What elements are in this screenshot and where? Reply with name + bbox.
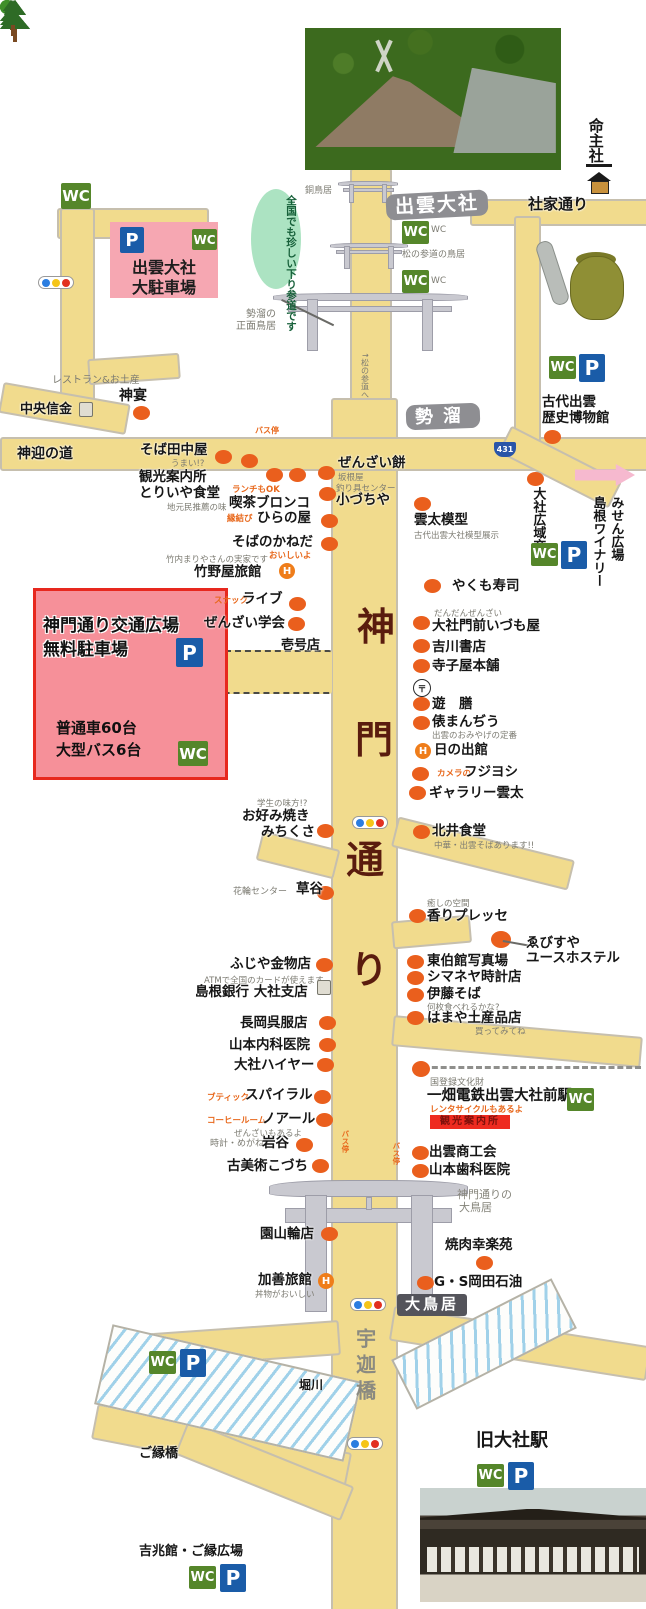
- torii-gate-part: [366, 1197, 372, 1210]
- map-label: 山本内科医院: [229, 1038, 310, 1054]
- shrine-roof: [453, 68, 555, 153]
- parking-icon: P: [579, 354, 605, 382]
- map-label: 島根銀行 大社支店: [195, 985, 308, 1001]
- shrine-icon: [586, 164, 612, 196]
- pine-tree-icon: [0, 126, 22, 156]
- label-kicchokan: 吉兆館・ご縁広場: [139, 1544, 243, 1559]
- bank-building-icon: [317, 980, 331, 995]
- torii-gate: [334, 243, 404, 269]
- shop-dot: [407, 955, 424, 969]
- torii-gate: [283, 293, 457, 351]
- shop-dot: [413, 825, 430, 839]
- map-label: 山本歯科医院: [429, 1163, 510, 1179]
- label-ichibata-station: 一畑電鉄出雲大社前駅: [427, 1088, 572, 1105]
- wc-icon: WC: [149, 1351, 176, 1374]
- shop-dot: [412, 767, 429, 781]
- map-label: 古代出雲: [542, 395, 596, 411]
- shop-dot: [413, 639, 430, 653]
- izumo-taisha-street-map: P WC 出雲大社 大駐車場 神門通り交通広場 無料駐車場 P 普通車60台 大…: [0, 0, 646, 1609]
- map-label: 岩谷: [262, 1136, 289, 1152]
- route-431-shield: 431: [494, 442, 516, 457]
- map-label: 伊藤そば: [427, 987, 481, 1003]
- parking-icon: P: [508, 1462, 534, 1490]
- route-number: 431: [497, 445, 514, 454]
- izumo-taisha-parking-box: P WC 出雲大社 大駐車場: [110, 222, 218, 298]
- map-label: 時計・めがね: [210, 1139, 264, 1150]
- map-label: 俵まんぢう: [432, 715, 500, 731]
- label-seidamari: 勢溜: [406, 403, 481, 431]
- shop-dot: [215, 450, 232, 464]
- label-ukabashi: 宇迦橋: [352, 1328, 376, 1406]
- map-label: 遊 膳: [432, 697, 473, 713]
- shinmon-dori-plaza-parking-box: 神門通り交通広場 無料駐車場 P 普通車60台 大型バス6台 WC: [33, 588, 228, 780]
- shrine-roof: [587, 172, 611, 181]
- pine-tree-icon-part: [11, 25, 15, 36]
- map-label: 銅鳥居: [305, 186, 332, 197]
- station-roof: [420, 1509, 646, 1520]
- pine-tree-icon-part: [0, 10, 26, 25]
- shop-dot: [409, 909, 426, 923]
- map-label: スパイラル: [245, 1088, 313, 1104]
- map-label: 園山輪店: [260, 1227, 314, 1243]
- map-label: とりいや食堂: [139, 486, 220, 502]
- map-label: 地元民推薦の味: [167, 503, 227, 513]
- parking-lot-name: 大駐車場: [110, 274, 218, 298]
- map-label: 長岡呉服店: [240, 1016, 308, 1032]
- map-label: 花輪センター: [233, 887, 287, 898]
- shop-dot: [412, 1061, 430, 1077]
- shop-dot: [413, 716, 430, 730]
- info-center-badge: 観光案内所: [430, 1115, 510, 1129]
- shop-dot: [321, 537, 338, 551]
- shop-dot: [321, 1227, 338, 1241]
- map-label: ギャラリー雲太: [429, 786, 524, 802]
- map-label: G・S岡田石油: [434, 1275, 522, 1291]
- map-label: 日の出館: [434, 743, 488, 759]
- map-label: バス停: [391, 1142, 400, 1165]
- map-label: 買ってみてね: [475, 1027, 526, 1037]
- station-windows: [427, 1547, 639, 1572]
- map-label: 壱号店: [281, 638, 320, 653]
- map-label: 中央信金: [20, 402, 72, 417]
- parking-lot-title: 神門通り交通広場: [43, 611, 179, 636]
- map-label: お好み焼き: [242, 809, 310, 825]
- shop-dot: [317, 824, 334, 838]
- map-label: 小づちや: [336, 493, 390, 509]
- traffic-light-icon: [347, 1437, 383, 1450]
- shop-dot: [407, 988, 424, 1002]
- map-label: 松の参道の鳥居: [402, 250, 465, 261]
- shop-dot: [407, 1011, 424, 1025]
- label-shake-dori: 社家通り: [528, 196, 588, 214]
- pine-tree-icon: [0, 246, 22, 276]
- torii-gate-part: [273, 293, 468, 301]
- map-label: 東伯館写真場: [427, 954, 508, 970]
- shop-dot: [288, 617, 305, 631]
- parking-icon: P: [180, 1349, 206, 1377]
- map-label: そば田中屋: [140, 443, 208, 459]
- torii-gate-part: [330, 243, 408, 248]
- map-label: 大社門前いづも屋: [432, 619, 540, 635]
- parking-icon: P: [561, 541, 587, 569]
- map-label: 古美術こづち: [227, 1159, 308, 1175]
- shop-dot: [314, 1090, 331, 1104]
- street-name-char: 門: [355, 718, 393, 763]
- shop-dot: [407, 971, 424, 985]
- map-label: 香りプレッセ: [427, 909, 508, 925]
- shop-dot: [296, 1138, 313, 1152]
- map-label: 中華・出雲そばあります!!: [434, 841, 534, 851]
- map-label: やくも寿司: [452, 579, 520, 595]
- torii-gate-part: [422, 299, 433, 351]
- shop-dot: [413, 659, 430, 673]
- signal-lamp: [351, 1440, 359, 1448]
- map-label: 寺子屋本舗: [432, 659, 500, 675]
- map-label: 正面鳥居: [236, 321, 276, 333]
- label-inochinushi-sha: 命主社: [586, 118, 604, 163]
- pine-tree-icon: [0, 216, 22, 246]
- map-label: 雲太模型: [414, 513, 468, 529]
- map-label: ふじや金物店: [230, 957, 311, 973]
- daikoku-bag-illustration: [542, 234, 624, 326]
- torii-gate-part: [349, 184, 354, 203]
- map-label: はまや土産品店: [427, 1011, 522, 1027]
- torii-gate-part: [338, 181, 398, 186]
- wc-icon: WC: [477, 1464, 504, 1487]
- parking-icon: P: [220, 1564, 246, 1592]
- parking-icon: P: [120, 227, 144, 253]
- shop-dot: [133, 406, 150, 420]
- pine-tree-icon: [0, 276, 31, 318]
- map-label: フジヨシ: [464, 765, 518, 781]
- shop-dot: [413, 697, 430, 711]
- map-label: 草谷: [296, 882, 323, 898]
- map-label: 吉川書店: [432, 640, 486, 656]
- map-label: ひらの屋: [257, 511, 311, 527]
- shop-dot: [417, 1276, 434, 1290]
- label-kyu-taisha-station: 旧大社駅: [476, 1430, 548, 1451]
- torii-bar: [586, 164, 612, 167]
- map-label: うまい!?: [171, 459, 204, 469]
- map-label: 竹野屋旅館: [194, 565, 262, 581]
- map-label: WC: [431, 276, 446, 287]
- label-goenbashi: ご縁橋: [139, 1446, 178, 1461]
- signal-lamp: [374, 1301, 382, 1309]
- map-label: 島根ワイナリー: [590, 496, 605, 587]
- map-label: ブティック: [207, 1093, 249, 1103]
- map-label: 坂根屋: [338, 473, 364, 483]
- wc-icon: WC: [402, 221, 429, 244]
- torii-gate-part: [388, 246, 394, 269]
- parking-capacity: 大型バス6台: [56, 739, 141, 760]
- shop-dot: [317, 1058, 334, 1072]
- map-label: 丼物がおいしい: [255, 1290, 315, 1300]
- shop-dot: [414, 497, 431, 511]
- street-name-char: り: [350, 948, 388, 993]
- railway-line: [423, 1066, 641, 1069]
- old-taisha-station-photo: [420, 1488, 646, 1602]
- shop-dot: [409, 786, 426, 800]
- map-label: レストラン&お土産: [52, 375, 140, 387]
- pine-tree-icon: [0, 96, 22, 126]
- shop-dot: [316, 958, 333, 972]
- shop-dot: [413, 616, 430, 630]
- bank-building-icon: [79, 402, 93, 417]
- shop-dot: [527, 472, 544, 486]
- wc-icon: WC: [192, 229, 217, 250]
- map-label: バス停: [255, 426, 279, 435]
- shop-dot: [319, 487, 336, 501]
- traffic-light-icon: [38, 276, 74, 289]
- map-label: 出雲のおみやげの定番: [432, 731, 517, 741]
- map-label: 勢溜の: [246, 309, 276, 321]
- wc-icon: WC: [402, 270, 429, 293]
- wc-icon: WC: [61, 183, 91, 209]
- post-office-icon: 〒: [413, 679, 431, 697]
- torii-gate-part: [269, 1180, 468, 1197]
- map-label: ↑松の参道へ: [360, 352, 369, 399]
- izumo-taisha-photo: [305, 28, 561, 170]
- map-label: ぜんざい学会: [204, 616, 285, 632]
- traffic-light-icon: [352, 816, 388, 829]
- torii-gate-part: [344, 246, 350, 269]
- wc-icon: WC: [531, 543, 558, 566]
- hotel-icon: H: [415, 743, 431, 759]
- signal-lamp: [42, 279, 50, 287]
- torii-gate-part: [307, 299, 318, 351]
- map-label: バス停: [340, 1130, 349, 1153]
- signal-lamp: [62, 279, 70, 287]
- map-label: 歴史博物館: [542, 411, 610, 427]
- tree-icon: [0, 48, 14, 72]
- wc-icon: WC: [178, 741, 208, 766]
- map-label: ライブ: [242, 592, 283, 608]
- map-label: 出雲商工会: [429, 1145, 497, 1161]
- map-label: レンタサイクルもあるよ: [430, 1105, 523, 1115]
- shop-dot: [318, 466, 335, 480]
- shop-dot: [319, 1038, 336, 1052]
- map-label: 加善旅館: [258, 1273, 312, 1289]
- signal-lamp: [361, 1440, 369, 1448]
- pine-tree-icon: [0, 318, 31, 360]
- parking-capacity: 普通車60台: [56, 717, 137, 738]
- shop-dot: [266, 468, 283, 482]
- map-label: ランチもOK: [232, 485, 280, 495]
- shop-dot: [544, 430, 561, 444]
- shop-dot: [319, 1016, 336, 1030]
- shop-dot: [289, 468, 306, 482]
- map-label: 縁結び: [227, 514, 253, 524]
- wc-icon: WC: [567, 1088, 594, 1111]
- shrine-body: [591, 181, 609, 194]
- hotel-icon: H: [279, 563, 295, 579]
- shop-dot: [424, 579, 441, 593]
- map-label: 神宴: [119, 388, 147, 405]
- bag-icon: [570, 256, 624, 320]
- street-name-char: 通: [346, 838, 384, 883]
- signal-lamp: [366, 819, 374, 827]
- shop-dot: [241, 454, 258, 468]
- shop-dot: [476, 1256, 493, 1270]
- pine-tree-icon: [0, 156, 22, 186]
- shop-dot: [321, 514, 338, 528]
- map-label: ぜんざい餅: [338, 456, 406, 472]
- pine-tree-icon: [0, 486, 31, 528]
- wc-icon: WC: [189, 1566, 216, 1589]
- label-horikawa: 堀川: [299, 1378, 323, 1392]
- shop-dot: [412, 1146, 429, 1160]
- signal-lamp: [364, 1301, 372, 1309]
- parking-icon: P: [176, 638, 203, 667]
- hotel-icon: H: [318, 1273, 334, 1289]
- map-label: 焼肉幸楽苑: [445, 1238, 513, 1254]
- road: [222, 650, 332, 694]
- kudari-sando-note: 全国でも珍しい下り参道です: [251, 189, 301, 289]
- shop-dot: [289, 597, 306, 611]
- map-label: 大社ハイヤー: [234, 1058, 314, 1074]
- signal-lamp: [356, 819, 364, 827]
- map-label: ユースホステル: [526, 951, 620, 967]
- map-label: コーヒールーム: [207, 1116, 266, 1126]
- map-label: 観光案内所: [139, 470, 207, 486]
- wc-icon: WC: [549, 356, 576, 379]
- parking-lot-title: 無料駐車場: [43, 635, 128, 660]
- tree-icon: [0, 72, 14, 96]
- signal-lamp: [371, 1440, 379, 1448]
- map-label: おいしいよ: [269, 551, 311, 561]
- shop-dot: [412, 1164, 429, 1178]
- label-kamimukae-no-michi: 神迎の道: [17, 446, 73, 463]
- map-label: 北井食堂: [432, 824, 486, 840]
- map-label: シマネヤ時計店: [427, 970, 522, 986]
- street-name-char: 神: [357, 605, 395, 650]
- signal-lamp: [376, 819, 384, 827]
- map-label: WC: [431, 225, 446, 236]
- shop-dot: [316, 1113, 333, 1127]
- signal-lamp: [354, 1301, 362, 1309]
- pine-tree-icon: [0, 186, 22, 216]
- label-otorii: 大鳥居: [397, 1294, 467, 1316]
- pine-tree-icon: [0, 528, 26, 564]
- map-label: ノアール: [262, 1112, 315, 1128]
- map-label: みせん広場: [608, 496, 623, 561]
- shop-dot: [312, 1159, 329, 1173]
- shop-dot: [491, 931, 511, 948]
- signal-lamp: [52, 279, 60, 287]
- map-label: 大鳥居: [459, 1202, 492, 1215]
- map-label: 古代出雲大社模型展示: [414, 531, 499, 541]
- map-label: みちくさ: [261, 825, 315, 841]
- traffic-light-icon: [350, 1298, 386, 1311]
- map-label: そばのかねだ: [232, 535, 313, 551]
